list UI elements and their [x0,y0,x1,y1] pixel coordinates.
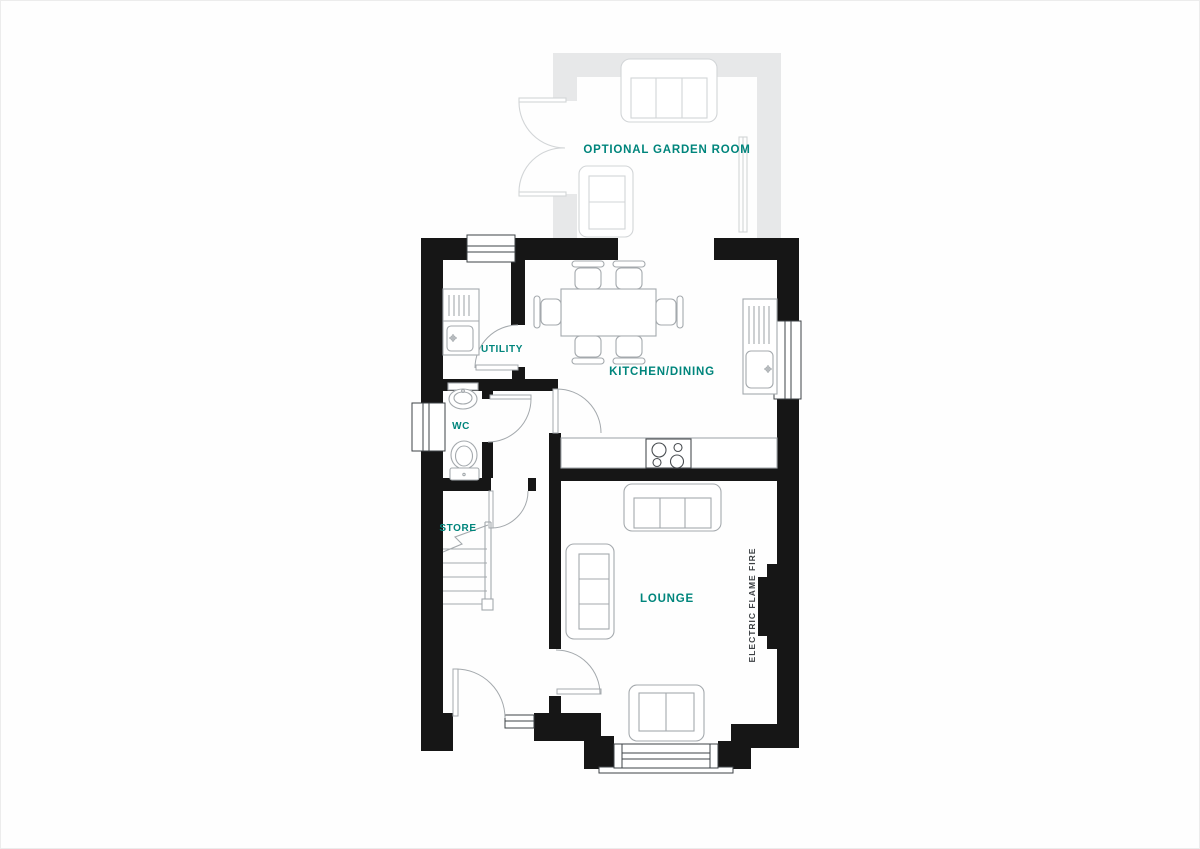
wc-label: WC [452,421,470,432]
front-door [453,669,505,718]
wc-door [488,395,531,442]
lounge-sofa-left [566,544,614,639]
garden-room-french-doors [519,98,566,196]
kitchen-sink-counter [743,299,777,394]
utility-counter [443,289,479,355]
electric-flame-fire-label: ELECTRIC FLAME FIRE [747,548,757,663]
wc-window [412,403,445,451]
kitchen-dining-label: KITCHEN/DINING [609,366,715,378]
garden-room-sofa-left [579,166,633,237]
garden-room-label: OPTIONAL GARDEN ROOM [583,144,750,156]
wc-basin [448,383,478,409]
utility-window [467,235,515,262]
kitchen-door [553,389,601,433]
wc-toilet [450,441,479,480]
floor-plan-drawing: OPTIONAL GARDEN ROOM UTILITY KITCHEN/DIN… [1,1,1200,849]
kitchen-hob [646,439,691,468]
utility-label: UTILITY [481,344,523,355]
garden-room-sofa-top [621,59,717,122]
front-door-sidelight [505,715,534,728]
lounge-door [556,650,601,694]
kitchen-window [774,321,801,399]
lounge-label: LOUNGE [640,593,694,605]
store-label: STORE [439,523,476,534]
dining-table [561,289,656,336]
store-door [489,491,528,528]
lounge-sofa-top [624,484,721,531]
floor-plan-page: OPTIONAL GARDEN ROOM UTILITY KITCHEN/DIN… [0,0,1200,849]
staircase [443,522,493,610]
lounge-sofa-bottom [629,685,704,741]
lounge-bay-window [599,744,733,773]
